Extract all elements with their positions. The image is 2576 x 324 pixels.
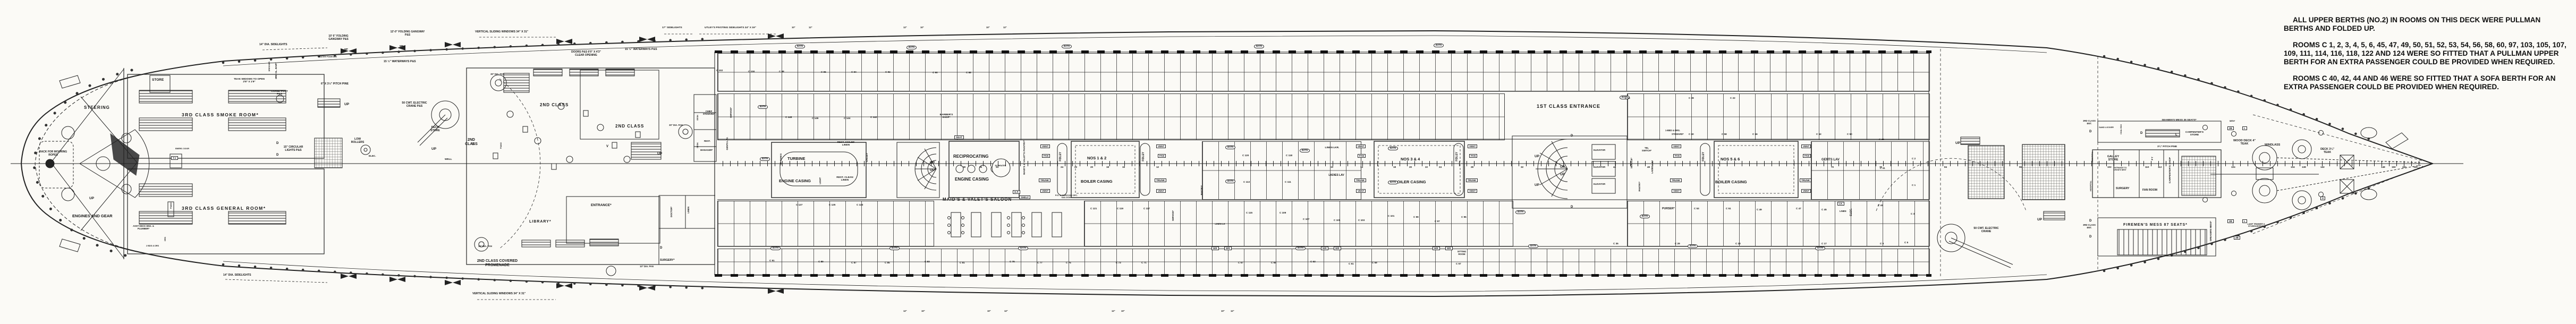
frame-number: 28 <box>1471 166 1473 168</box>
room-cell-label: VENT <box>1356 144 1366 148</box>
barbers-shop-label: BARBER'S SHOP* <box>936 114 956 120</box>
boilers-5-6-label: NOS 5 & 6 <box>1721 157 1740 161</box>
cabin-number: C 91 <box>769 259 775 262</box>
dresser-label: DRESSER <box>268 62 270 71</box>
water-fountain-label: WATER FOUNTAIN <box>319 56 337 58</box>
door-letter-mark: L <box>2175 133 2177 137</box>
room-cell-label: FAN <box>1803 154 1811 158</box>
cabin-number: C 123 <box>857 203 863 206</box>
small-dimension-label: 10" <box>920 27 924 29</box>
up-stair-label: UP <box>930 161 935 165</box>
gents-lav-label-b: GENTS LAV. <box>726 137 729 150</box>
cabin-number: C 125 <box>829 203 835 206</box>
bath-label: BATH <box>1815 246 1825 250</box>
cabin-number: C 92 <box>885 71 891 73</box>
frame-number: 24 <box>1439 166 1442 168</box>
reciprocating-label: RECIPROCATING <box>953 155 989 159</box>
cabin-number: C 29 <box>1675 242 1680 245</box>
small-dimension-label: 12" <box>1004 310 1008 313</box>
pt-label: P T <box>2151 157 2154 160</box>
up-stair-label: UP <box>1535 155 1539 158</box>
pitch-pine-label-aft: 6" X 3½" PITCH PINE <box>321 83 349 86</box>
up-stair-label: UP <box>1560 165 1565 169</box>
bath-label: BATH <box>1225 146 1235 149</box>
pitch-pine-label-fwd: 3¼" PITCH PINE <box>2157 146 2177 148</box>
men-label: MEN* <box>2230 120 2235 122</box>
cabin-number: C 75 <box>1066 261 1071 264</box>
linen-locker-label: LINEN LKR. <box>1324 147 1340 149</box>
room-cell-label: FAN <box>1673 154 1681 158</box>
small-dimension-label: WP <box>400 45 403 48</box>
bds-drs-label: 2 BDS & DRS <box>146 245 159 247</box>
doors-clear-opening-label: DOORS P&S 6'0" X 4'3" CLEAR OPENING <box>569 51 604 57</box>
cabin-number: C 48 <box>1879 138 1884 141</box>
cabin-number: C 115 <box>1246 211 1252 214</box>
cabin-number: C 5 <box>1904 241 1908 244</box>
cabin-number: C 87 <box>851 261 857 264</box>
small-dimension-label: 10" <box>792 27 795 29</box>
boilers-3-4-label: NOS 3 & 4 <box>1401 157 1420 161</box>
room-cell-label: T.V <box>171 156 178 160</box>
frame-number: 112 <box>2158 166 2162 168</box>
small-dimension-label: 1-BED & DRS. <box>1665 130 1680 132</box>
cabin-number: C 85 <box>885 261 890 264</box>
frame-number: 18 <box>1106 166 1109 168</box>
crane-post-label: CRANE POST P&S <box>270 90 289 96</box>
frame-number: 10 <box>1331 166 1333 168</box>
vertical-room-label: FIDLEY <box>1060 152 1063 161</box>
frame-number: 154 <box>2413 166 2418 168</box>
bath-label: BATH <box>1434 44 1444 47</box>
chief-steward-label: CHIEF STEWARD* <box>700 110 717 115</box>
rest-clean-linen-label: REST. CLEAN LINEN <box>835 176 854 182</box>
small-dimension-label: LINEN <box>1840 210 1846 213</box>
frame-number: 70 <box>1831 166 1834 168</box>
wood-deck-teak-label: WOOD DECK 4" TEAK <box>2232 139 2257 146</box>
cabin-number: C 96 <box>821 71 826 73</box>
waterways-label-aft: 15 ½" WATERWAYS P&S <box>384 61 416 64</box>
fan-10-label: 10" DIA. FAN <box>640 266 654 268</box>
up-stair-label: UP <box>1955 141 1960 145</box>
cabin-number: C 28 <box>1689 97 1694 99</box>
cabin-number: C 81 <box>960 261 965 264</box>
sidelights-14-label-bottom: 14" DIA. SIDELIGHTS <box>223 274 251 277</box>
small-dimension-label: STEWARD* <box>1672 133 1684 136</box>
cabin-number: C 127 <box>796 203 802 206</box>
frame-number: 22 <box>1074 166 1077 168</box>
gents-lav-label-a: GENTS LAV <box>1821 158 1840 162</box>
cabin-number: C 34 <box>1625 97 1630 99</box>
cabin-number: C 97 <box>1435 220 1440 223</box>
vertical-windows-label-bottom: VERTICAL SLIDING WINDOWS 34" X 31" <box>472 293 526 296</box>
steering-label: STEERING <box>84 106 110 110</box>
frame-number: 148 <box>2381 166 2385 168</box>
frame-number: 38 <box>963 166 965 168</box>
third-class-ent-label-top: 3RD CLASS ENT. <box>2081 120 2098 125</box>
cabin-number: C 105 <box>1334 219 1340 221</box>
well-label: WELL <box>445 158 452 161</box>
up-stair-label: UP <box>1535 183 1539 187</box>
cabin-number: C 101 <box>1388 215 1394 217</box>
engines-and-gear-label: ENGINES AND GEAR <box>72 214 113 218</box>
bath-label: BATH <box>1515 210 1526 214</box>
folding-gangway-10-label: 10' 6" FOLDING GANGWAY P&S <box>322 35 355 41</box>
boiler-casing-label-c: BOILER CASING <box>1715 180 1747 184</box>
cabin-number: C 41 <box>1880 167 1885 169</box>
door-letter-mark: D <box>1571 206 1573 209</box>
cabin-number: C 121 <box>1090 207 1097 210</box>
frame-number: 22 <box>1425 166 1428 168</box>
small-dimension-label: 10" <box>986 27 990 29</box>
bath-label: BATH <box>795 45 805 48</box>
coal-box-label: COAL BOX <box>2120 124 2122 134</box>
cabin-number: C 22 <box>1730 97 1735 99</box>
sidelights-17-label: 17" SIDELIGHTS <box>662 27 682 29</box>
sidelights-14-label-top: 14" DIA. SIDELIGHTS <box>259 44 287 47</box>
third-class-bar-label: 3RD CL. BAR* <box>275 63 277 79</box>
room-cell-label: TRUNK <box>1155 178 1166 182</box>
frame-number: 138 <box>2302 166 2306 168</box>
cabin-number: C 146 <box>812 117 818 120</box>
cabin-number: C 119 <box>1117 207 1123 210</box>
room-cell-label: VENT <box>1801 189 1811 193</box>
reciprocating-engine-casing-label: ENGINE CASING <box>955 177 989 182</box>
note-paragraph-2: ROOMS C 1, 2, 3, 4, 5, 6, 45, 47, 49, 50… <box>2284 41 2568 66</box>
frame-number: 84 <box>1944 166 1947 168</box>
cabin-number: C 35 <box>1613 242 1619 245</box>
surgery-label-2nd: SURGERY* <box>660 259 674 262</box>
up-stair-label: UP <box>2037 218 2042 221</box>
room-cell-label: WR <box>1334 246 1341 250</box>
small-dimension-label: WP <box>344 48 348 51</box>
door-letter-mark: D <box>2089 219 2091 223</box>
up-stair-label: UP <box>89 197 94 200</box>
third-class-general-room-label: 3RD CLASS GENERAL ROOM* <box>182 206 266 211</box>
rest-soiled-linen-label: REST. SOILED LINEN <box>836 141 855 147</box>
room-cell-label: WR <box>1224 246 1232 250</box>
cabin-number: C 107 <box>1303 218 1309 220</box>
galley-store-label: GALLEY STORE <box>2104 155 2122 161</box>
service-label-a: SERVICE* <box>730 107 733 118</box>
cabin-number: C 99 <box>1413 216 1419 218</box>
door-letter-mark: D <box>1571 134 1573 138</box>
linen-lk-label: LINEN LK <box>1214 223 1226 226</box>
room-cell-label: WR <box>1321 246 1328 250</box>
door-letter-mark: D <box>2140 132 2142 135</box>
deck-store-label: DECK STORE <box>427 126 443 133</box>
cabin-number: C 103 <box>1358 219 1365 221</box>
cabin-number: C 94 <box>851 71 857 73</box>
door-letter-mark: V <box>606 145 608 149</box>
library-label: LIBRARY* <box>529 220 552 224</box>
room-cell-label: VENT <box>1156 144 1166 148</box>
waterways-label-mid: 15 ½" WATERWAYS P&S <box>625 48 657 52</box>
ladies-lav-label-b: LADIES LAV <box>1651 160 1654 174</box>
cabin-number: C 120 <box>1242 154 1249 157</box>
small-dimension-label: 10" <box>1221 310 1225 313</box>
asst-deck-eng-label: ASST DECK ENG. & PLUMBER* <box>132 225 155 230</box>
deck-plan-page: STEERING RACK FOR MOORING ROPES ENGINES … <box>0 0 2576 324</box>
frame-number: 24 <box>1061 166 1063 168</box>
electric-crane-label-aft: 50 CWT. ELECTRIC CRANE P&S <box>397 102 431 108</box>
third-class-smoke-room-label: 3RD CLASS SMOKE ROOM* <box>182 113 259 118</box>
second-class-entrance-label: ENTRANCE* <box>591 203 612 207</box>
elevator-label-2: ELEVATOR <box>1594 166 1605 169</box>
frame-number: 12 <box>1156 166 1159 168</box>
third-class-ent-label-bottom: 3RD CLASS ENT. <box>2081 224 2098 229</box>
carpenters-shop-label: CARPENTER'S SHOP <box>2169 157 2172 183</box>
room-cell-label: TRUNK <box>1354 178 1366 182</box>
frame-number: 32 <box>1521 166 1523 168</box>
elevator-label-3: ELEVATOR <box>1594 183 1605 186</box>
room-cell-label: VENT <box>1156 189 1166 193</box>
cabin-number: C 9 <box>1880 242 1884 245</box>
up-stair-label: UP <box>657 152 662 156</box>
bath-label: BATH <box>1254 45 1264 48</box>
cabin-band-inner-bottom-a <box>717 201 934 246</box>
second-class-label-a: 2ND CLASS <box>540 103 569 108</box>
windlass-label: WINDLASS <box>2265 143 2280 147</box>
cabin-number: C 23 <box>1735 242 1741 245</box>
cabin-number: C 117 <box>1143 207 1150 210</box>
light-shaft-label: LIGHT <box>819 177 822 184</box>
cabin-number: C 61 <box>1349 262 1354 265</box>
cabin-number: C 77 <box>1037 261 1043 264</box>
bath-label: BATH <box>1640 215 1650 218</box>
frame-number: 152 <box>2402 166 2406 168</box>
bath-label: BATH <box>1528 244 1538 248</box>
galley-label: GALLEY <box>866 153 869 162</box>
window-strip-bottom <box>715 274 1931 277</box>
sand-locker-label: SAND LOCKER <box>2099 126 2114 129</box>
bath-label: BATH <box>1388 181 1398 184</box>
cabin-number: C 56 <box>1752 133 1758 135</box>
vertical-room-label: ELEC. <box>1850 208 1853 216</box>
bath-label: BATH <box>1300 149 1310 152</box>
desk-label-b: DESK <box>697 142 699 148</box>
cabin-block-centre-aft <box>1202 141 1361 200</box>
up-stair-label: UP <box>1560 173 1565 176</box>
desk-label-a: DESK <box>697 115 699 121</box>
room-cell-label: S <box>2320 197 2325 200</box>
cabin-number: C 3 <box>1911 212 1914 215</box>
cabin-block-centre-fwd <box>1811 141 1930 200</box>
cabin-number: C 142 <box>870 116 877 118</box>
service-label-b: SERVICE* <box>1172 210 1175 221</box>
room-cell-label: WR <box>1445 246 1453 250</box>
room-cell-label: VENT <box>1801 144 1811 148</box>
cabin-number: C 100 <box>748 70 755 73</box>
tel-switch-label: TEL SWITCH* <box>1640 147 1654 152</box>
cabin-number: C 52 <box>1816 133 1821 135</box>
frame-number: 44 <box>1613 166 1616 168</box>
fan-30-label-c: 30" DIA. FAN <box>478 245 493 248</box>
small-dimension-label: 10" <box>987 310 991 313</box>
teak-windows-label: TEAK WIDOWS TO OPEN 2'8" X 1'9" <box>234 78 265 84</box>
bath-label: BATH <box>906 46 917 49</box>
small-dimension-label: 12" <box>903 27 907 29</box>
pantry-label-a: PANTRY* <box>1639 182 1641 191</box>
boilers-1-2-label: NOS 1 & 2 <box>1087 156 1106 160</box>
door-letter-mark: D <box>472 143 474 147</box>
cabin-band-outer-bottom <box>717 249 1930 275</box>
cabin-number: C 47 <box>1796 207 1801 210</box>
room-cell-label: FAN <box>1358 154 1366 158</box>
frame-number: 14 <box>1360 166 1363 168</box>
room-cell-label: WR <box>1211 246 1219 250</box>
cabin-number: C 73 <box>1116 261 1121 264</box>
elec-label-aft: ELEC. <box>369 155 376 157</box>
cabin-number: C 53 <box>1694 207 1699 210</box>
vertical-room-label: FIDLEY <box>1142 152 1146 161</box>
covered-promenade-label: 2ND CLASS COVERED PROMENADE <box>467 259 528 268</box>
folding-gangway-12-label: 12'-0" FOLDING GANGWAY P&S <box>390 31 425 37</box>
surgery-label-bow: SURGERY <box>2116 187 2129 191</box>
piano-label-aft: PIANO <box>170 202 172 209</box>
frame-number: 49 <box>1647 166 1650 168</box>
cabin-number: C 111 <box>1285 181 1291 183</box>
cabin-number: C 59 <box>1372 261 1377 264</box>
cabin-number: C 118 <box>1286 154 1292 157</box>
frame-number: 142 <box>2320 166 2325 168</box>
emergency-door-label: EMERG. DOOR <box>175 148 189 150</box>
cabin-number: C 144 <box>844 117 850 120</box>
cabin-number: C 57 <box>1456 262 1461 265</box>
room-cell-label: VENT <box>1356 189 1366 193</box>
frame-tick-strip <box>723 161 2423 166</box>
cabin-band-inner-top-aft <box>717 93 1505 140</box>
small-dimension-label: 12" <box>809 27 812 29</box>
mooring-rack-label: RACK FOR MOORING ROPES <box>38 151 68 157</box>
cabin-number: C 113 <box>1243 181 1250 183</box>
greasers-mess-label: GREASERS MESS* <box>2210 221 2213 241</box>
cabin-band-outer-top <box>717 53 1930 91</box>
cabin-number: C 89 <box>818 260 824 263</box>
boiler-casing-label-b: BOILER CASING <box>1394 180 1426 184</box>
door-letter-mark: D <box>276 142 278 146</box>
deck-teak-label: DECK 3¼" TEAK <box>2318 148 2337 155</box>
cabin-number: C 49 <box>1757 208 1762 211</box>
electric-crane-label-fwd: 50 CWT. ELECTRIC CRANE <box>1969 227 2003 234</box>
small-dimension-label: 12" <box>903 310 907 313</box>
hospital-label-a: HOSPITAL <box>2091 151 2094 162</box>
cabin-number: C 51 <box>1726 207 1731 210</box>
carpenters-store-label: CARPENTER'S STORE <box>2182 131 2207 137</box>
cabin-number: C 1 <box>1912 184 1916 186</box>
hospital-label-b: HOSPITAL <box>2090 181 2092 191</box>
frame-number: 20 <box>1409 166 1412 168</box>
turbine-engine-casing-label: ENGINE CASING <box>779 179 811 183</box>
cabin-number: C 109 <box>1279 211 1286 214</box>
cabin-number: C 98 <box>779 70 784 73</box>
maids-valets-saloon-label: MAID'S & VALET'S SALOON <box>943 198 1012 202</box>
room-cell-label: SEAT <box>954 135 964 139</box>
cabin-number: C 95 <box>1461 216 1467 218</box>
frame-number: 18 <box>1393 166 1396 168</box>
piano-label-2nd: PIANO <box>500 142 502 149</box>
small-dimension-label: 12" <box>1231 310 1234 313</box>
room-cell-label: FAN <box>1042 154 1050 158</box>
room-cell-label: VENT <box>1468 144 1477 148</box>
room-cell-label: VENT <box>1672 144 1681 148</box>
room-cell-label: VENT <box>1672 189 1681 193</box>
firemens-mess-label: FIREMEN'S MESS 87 SEATS* <box>2123 223 2188 227</box>
cabin-number: C 43 <box>1878 204 1883 207</box>
lamp-trimmer-label: LAMP TRIMMER & STOREKEEPER* <box>2243 223 2269 228</box>
cabin-number: C 58 <box>1722 133 1727 135</box>
room-cell-label: TRUNK <box>1800 178 1811 182</box>
ladies-lav-label-a: LADIES LAV <box>1328 174 1344 177</box>
linen-label-2nd: LINEN <box>688 207 690 214</box>
frame-number: 124 <box>2231 166 2235 168</box>
frame-number: 34 <box>996 166 998 168</box>
bath-label: BATH <box>1688 244 1698 248</box>
bath-label: BATH <box>758 105 768 109</box>
elevator-label-1: ELEVATOR <box>1594 149 1605 152</box>
cabin-number: C 65 <box>1271 261 1276 264</box>
low-rollers-label: LOW ROLLERS <box>348 138 368 144</box>
room-cell-label: VENT <box>1040 189 1050 193</box>
second-class-label-b: 2ND CLASS <box>615 124 644 129</box>
small-dimension-label: 10" <box>921 310 925 313</box>
bath-label: BATH <box>770 246 781 250</box>
room-cell-label: VENT <box>1468 189 1477 193</box>
vertical-windows-label-top: VERTICAL SLIDING WINDOWS 34" X 31" <box>475 31 528 34</box>
note-paragraph-1: ALL UPPER BERTHS (NO.2) IN ROOMS ON THIS… <box>2284 16 2568 33</box>
doctor-label: DOCTOR* <box>671 207 673 217</box>
up-stair-label: UP <box>344 103 349 106</box>
room-cell-label: LK. <box>1837 202 1844 206</box>
cabin-number: C 63 <box>1310 260 1316 263</box>
manager-label: MANAGER* <box>700 149 713 152</box>
room-cell-label: WR <box>1433 246 1440 250</box>
po-marconi-saloon-label: P.O. & MARCONI OFC. SALOON* <box>1053 194 1080 199</box>
rest-label: REST. <box>704 140 710 143</box>
maids-valets-pantry-label: MAID'S & VALET'S PANTRY* <box>1023 140 1026 175</box>
oil-tanks-label: OIL TANKS <box>780 154 783 165</box>
fan-30-label-a: 30" DIA. FAN <box>490 73 505 76</box>
cabin-number: C 88 <box>966 71 971 74</box>
small-dimension-label: 12" <box>1112 310 1115 313</box>
sitting-room-label: SITTING ROOM <box>1454 251 1470 255</box>
cabin-number: C 50 <box>1847 133 1852 135</box>
vertical-room-label: FIDLEY <box>1456 152 1459 161</box>
frame-number: 20 <box>1090 166 1093 168</box>
room-cell-label: 2B <box>2227 219 2234 223</box>
door-letter-mark: D <box>2089 130 2091 134</box>
crows-nest-entrance-label: ENTRANCE TO CROW'S NEST <box>2111 167 2130 172</box>
bath-label: BATH <box>889 246 900 250</box>
first-class-entrance-label: 1ST CLASS ENTRANCE <box>1537 104 1600 109</box>
cabin-number: C 71 <box>1141 261 1147 264</box>
door-letter-mark: D <box>2089 235 2091 239</box>
cabin-number: C 79 <box>1010 260 1015 263</box>
frame-number: 134 <box>2291 166 2295 168</box>
frame-number: 150 <box>2392 166 2396 168</box>
pullman-berth-notes: ALL UPPER BERTHS (NO.2) IN ROOMS ON THIS… <box>2284 16 2568 99</box>
cabin-number: C 60 <box>1689 133 1694 135</box>
cabin-number: C 90 <box>933 71 938 74</box>
small-dimension-label: 12" <box>1003 27 1007 29</box>
room-cell-label: 2B <box>2234 236 2240 240</box>
bath-label: BATH <box>760 157 770 161</box>
bath-label: BATH <box>1295 246 1306 250</box>
frame-number: 102 <box>2107 166 2112 168</box>
room-cell-label: TRUNK <box>1039 178 1050 182</box>
room-cell-label: H.P. <box>1013 190 1020 194</box>
purser-label: PURSER* <box>1662 208 1675 211</box>
frame-number: 36 <box>979 166 982 168</box>
